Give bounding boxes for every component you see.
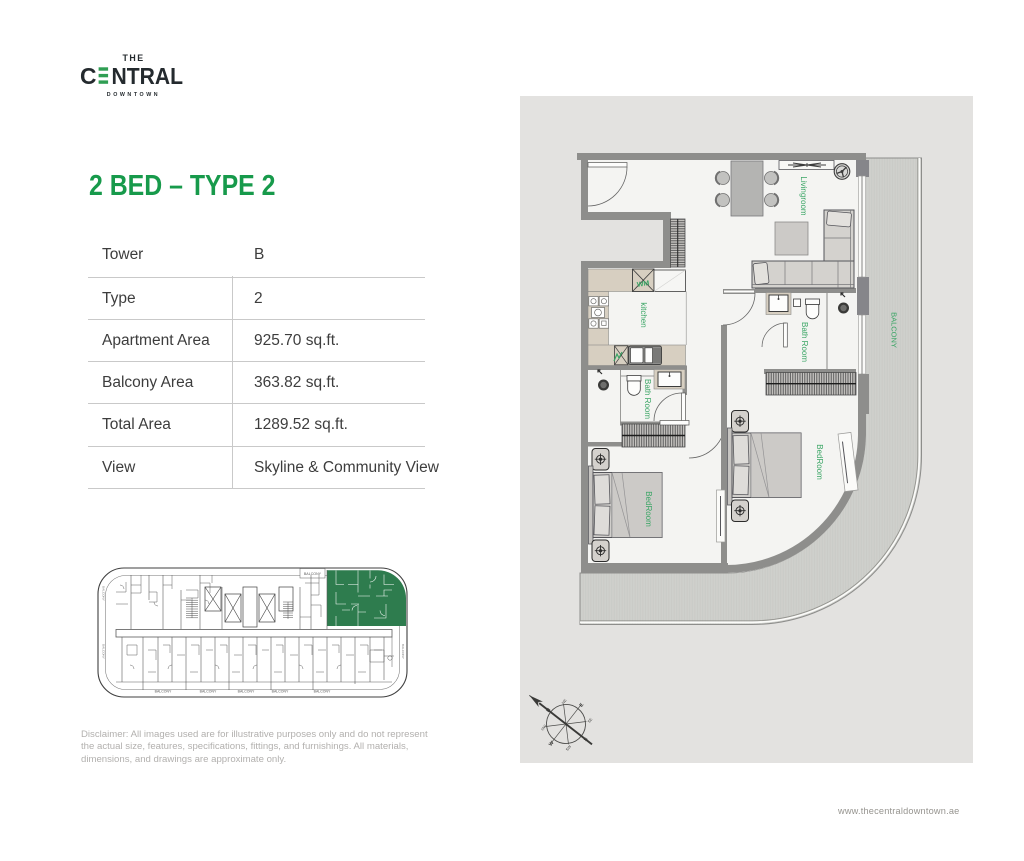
svg-text:C: C: [80, 63, 97, 89]
svg-text:Bath Room: Bath Room: [800, 322, 809, 362]
svg-text:BALCONY: BALCONY: [238, 690, 255, 694]
svg-text:Livingroom: Livingroom: [799, 176, 808, 215]
svg-text:Bath Room: Bath Room: [643, 379, 652, 419]
svg-text:BALCONY: BALCONY: [155, 690, 172, 694]
svg-text:BedRoom: BedRoom: [644, 491, 653, 527]
svg-text:BedRoom: BedRoom: [815, 444, 824, 480]
svg-text:BALCONY: BALCONY: [102, 644, 106, 659]
svg-text:E: E: [578, 702, 585, 709]
svg-text:BALCONY: BALCONY: [272, 690, 289, 694]
svg-text:DOWNTOWN: DOWNTOWN: [107, 92, 158, 98]
svg-text:BALCONY: BALCONY: [890, 312, 899, 348]
svg-text:BALCONY: BALCONY: [401, 644, 405, 659]
svg-text:BALCONY: BALCONY: [102, 586, 106, 601]
svg-text:kitchen: kitchen: [639, 302, 648, 327]
svg-text:THE: THE: [123, 53, 144, 63]
svg-text:NE: NE: [561, 698, 568, 705]
svg-text:BALCONY: BALCONY: [200, 690, 217, 694]
svg-text:BALCONY: BALCONY: [314, 690, 331, 694]
svg-text:W: W: [548, 740, 556, 748]
svg-text:SW: SW: [565, 744, 572, 752]
svg-text:SE: SE: [587, 717, 594, 724]
svg-text:NTRAL: NTRAL: [112, 63, 184, 89]
